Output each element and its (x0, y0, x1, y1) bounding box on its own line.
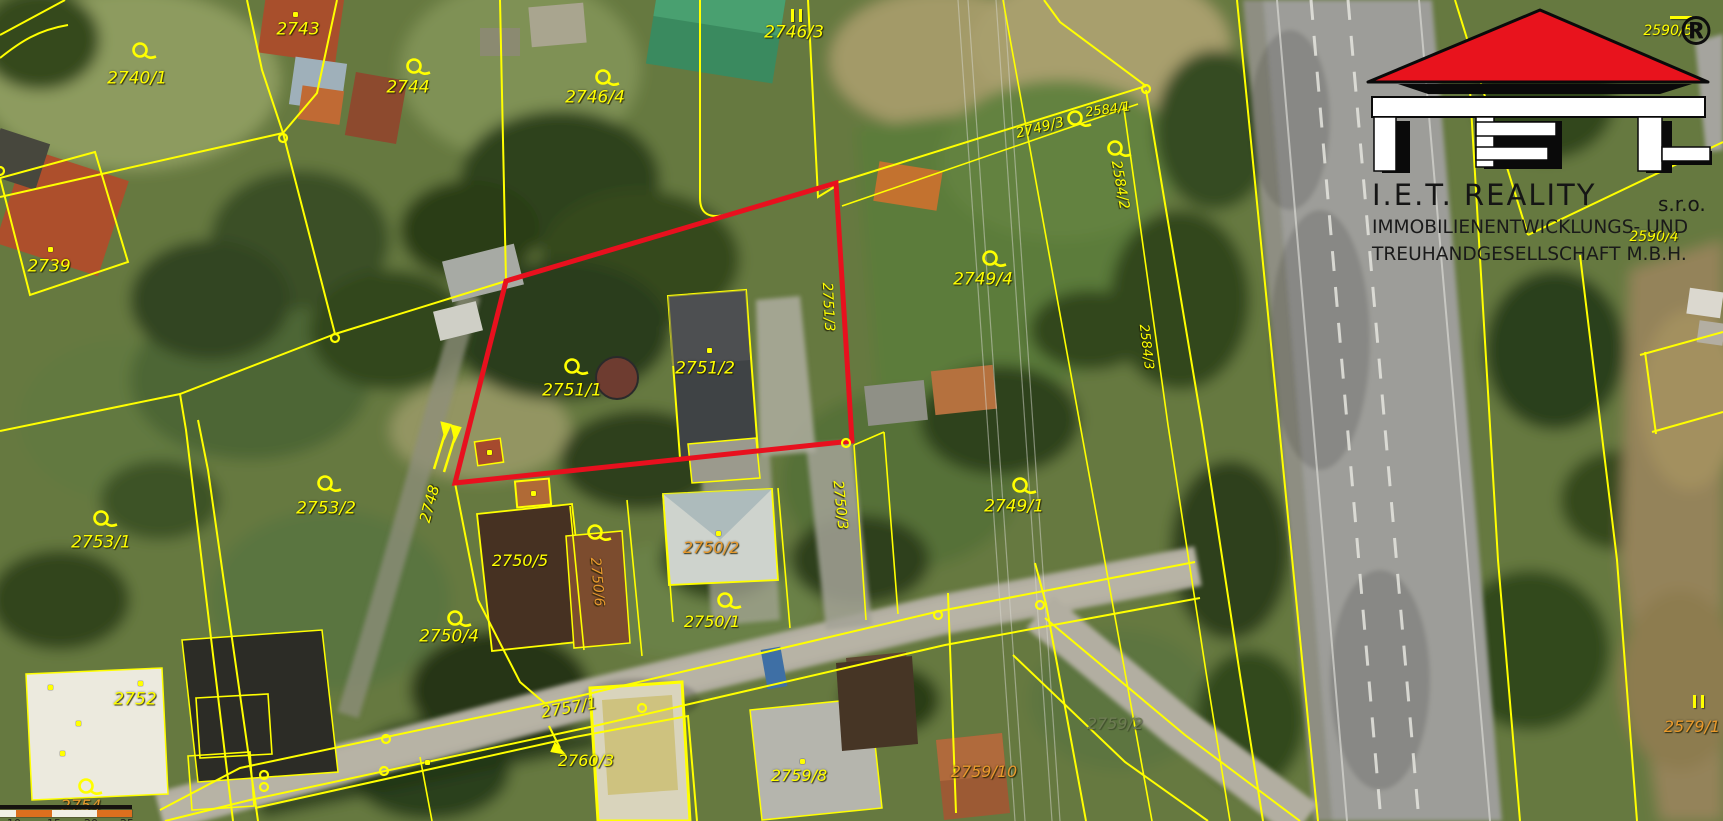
parcel-label: 2753/2 (296, 501, 356, 518)
balloon-marker-icon (563, 357, 589, 383)
brand-subtitle-1: IMMOBILIENENTWICKLUNGS- UND (1372, 216, 1688, 238)
scale-bar-segments (0, 810, 132, 817)
company-logo: I.E.T. REALITY s.r.o. IMMOBILIENENTWICKL… (1360, 0, 1723, 280)
balloon-marker-icon (716, 591, 742, 617)
double-bar-symbol (791, 7, 807, 26)
balloon-marker-icon (594, 68, 620, 94)
parcel-label: 2750/3 (830, 480, 849, 530)
parcel-label: 2746/3 (764, 25, 824, 42)
balloon-marker-icon (1066, 109, 1092, 135)
parcel-label: 2749/3 (1014, 115, 1065, 141)
scale-bar-tick: 20 (84, 817, 98, 821)
parcel-label: 2739 (27, 259, 70, 276)
balloon-marker-icon (131, 41, 157, 67)
building-dot (138, 681, 143, 686)
building-dot (48, 247, 53, 252)
balloon-marker-icon (1106, 139, 1132, 165)
brand-suffix: s.r.o. (1658, 192, 1706, 216)
parcel-label: 2748 (418, 484, 442, 525)
parcel-label: 2750/6 (588, 557, 606, 607)
parcel-label: 2751/2 (675, 361, 735, 378)
balloon-marker-icon (1011, 476, 1037, 502)
balloon-marker-icon (92, 509, 118, 535)
building-dot (716, 531, 721, 536)
parcel-label: 2750/2 (683, 540, 739, 556)
registered-trademark-icon: ® (1676, 12, 1716, 52)
building-dot (707, 348, 712, 353)
parcel-label: 2757/1 (540, 695, 598, 721)
parcel-label: 2752 (113, 692, 156, 709)
scale-bar-tick: 25 (120, 817, 134, 821)
balloon-marker-icon (981, 249, 1007, 275)
boundary-node-icon (636, 699, 648, 718)
double-bar-symbol (1693, 693, 1709, 712)
brand-subtitle-2: TREUHANDGESELLSCHAFT M.B.H. (1372, 243, 1687, 265)
building-dot (531, 491, 536, 496)
building-dot (425, 760, 430, 765)
boundary-node-icon (380, 730, 392, 749)
parcel-label: 2743 (276, 22, 319, 39)
parcel-label: 2751/1 (542, 383, 602, 400)
boundary-node-icon (0, 162, 6, 181)
building-dot (293, 12, 298, 17)
boundary-node-icon (1034, 596, 1046, 615)
brand-name: I.E.T. REALITY (1372, 178, 1596, 212)
parcel-label: 2753/1 (71, 535, 131, 552)
building-dot (48, 685, 53, 690)
boundary-node-icon (277, 129, 289, 148)
map-scale-bar: 10152025 (0, 803, 140, 821)
parcel-label: 2760/3 (558, 753, 614, 769)
building-dot (76, 721, 81, 726)
scale-bar-segment (16, 810, 52, 817)
parcel-label: 2759/8 (771, 768, 827, 784)
scale-bar-segment (0, 810, 16, 817)
balloon-marker-icon (446, 609, 472, 635)
balloon-marker-icon (316, 474, 342, 500)
scale-bar-segment (52, 810, 97, 817)
building-dot (60, 751, 65, 756)
boundary-node-icon (840, 434, 852, 453)
building-dot (800, 759, 805, 764)
scale-bar-tick: 10 (7, 817, 21, 821)
parcel-label: 2579/1 (1664, 719, 1720, 735)
boundary-node-icon (329, 329, 341, 348)
balloon-marker-icon (586, 523, 612, 549)
parcel-label: 2759/10 (951, 764, 1017, 780)
boundary-node-icon (1140, 80, 1152, 99)
parcel-label: 2584/3 (1137, 324, 1155, 371)
scale-bar-tick: 15 (47, 817, 61, 821)
boundary-node-icon (932, 606, 944, 625)
aerial-cadastral-map: 2740/1274327442746/42746/327392584/12749… (0, 0, 1723, 821)
boundary-node-icon (378, 762, 390, 781)
balloon-marker-icon (405, 57, 431, 83)
parcel-label: 2750/5 (492, 553, 548, 569)
building-dot (487, 450, 492, 455)
scale-bar-segment (97, 810, 132, 817)
scale-bar-top (0, 805, 132, 809)
parcel-label: 2584/2 (1109, 160, 1131, 211)
balloon-marker-icon (77, 777, 103, 803)
boundary-node-icon (258, 778, 270, 797)
parcel-label: 2740/1 (107, 71, 167, 88)
parcel-label: 2759/2 (1087, 716, 1143, 732)
parcel-label: 2751/3 (820, 282, 837, 332)
